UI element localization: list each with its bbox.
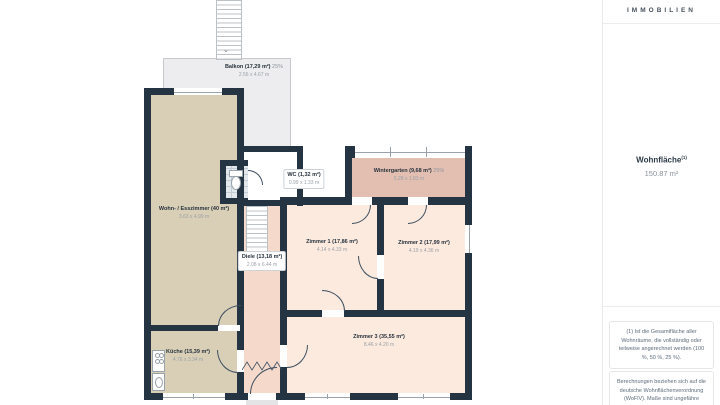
internal-staircase bbox=[246, 206, 268, 254]
wall bbox=[225, 393, 248, 400]
note-disclaimer-text: Berechnungen beziehen sich auf die deuts… bbox=[617, 379, 706, 405]
wall bbox=[372, 197, 408, 205]
toilet-icon bbox=[231, 176, 241, 190]
living-area-value: 150.87 m² bbox=[603, 169, 720, 178]
divider bbox=[603, 23, 720, 24]
door-opening bbox=[352, 197, 372, 205]
floor-plan-canvas: ⌄ bbox=[0, 0, 602, 405]
room-zimmer2 bbox=[384, 205, 465, 310]
wall bbox=[237, 372, 244, 393]
wall bbox=[276, 393, 305, 400]
window-mullion bbox=[423, 394, 424, 399]
room-label-wc: WC (1,32 m²) 0.99 x 1.33 m bbox=[283, 169, 324, 189]
door-opening bbox=[248, 393, 276, 400]
window bbox=[465, 225, 472, 253]
window-mullion bbox=[327, 394, 328, 399]
info-sidebar: IMMOBILIEN Wohnfläche(1) 150.87 m² (1) I… bbox=[602, 0, 720, 405]
room-name: Wohn- / Esszimmer (40 m²) bbox=[159, 206, 229, 213]
room-name: Zimmer 2 (17,99 m²) bbox=[398, 240, 450, 247]
wall bbox=[280, 197, 352, 205]
stair-break-line bbox=[242, 360, 282, 372]
wall bbox=[144, 88, 174, 95]
room-name: WC (1,32 m²) bbox=[287, 172, 320, 179]
wall bbox=[345, 146, 355, 158]
room-dims: 2.56 x 4.67 m bbox=[225, 72, 283, 78]
window-mullion bbox=[193, 394, 194, 399]
wall bbox=[465, 146, 472, 225]
window bbox=[174, 88, 222, 95]
room-label-diele: Diele (13,18 m²) 2.08 x 6.44 m bbox=[238, 251, 286, 271]
room-label-balkon: Balkon (17,29 m²) 25% 2.56 x 4.67 m bbox=[225, 64, 283, 78]
door-arc bbox=[248, 170, 263, 185]
room-dims: 4.19 x 4.36 m bbox=[398, 248, 450, 254]
room-name: Zimmer 1 (17,86 m²) bbox=[306, 239, 358, 246]
window bbox=[398, 393, 450, 400]
wall bbox=[144, 325, 218, 331]
room-percentage: 25% bbox=[272, 64, 283, 70]
note-disclaimer: Berechnungen beziehen sich auf die deuts… bbox=[609, 371, 714, 405]
wall bbox=[226, 160, 248, 166]
wall bbox=[226, 198, 248, 204]
room-percentage: 25% bbox=[433, 168, 444, 174]
door-opening bbox=[377, 255, 384, 279]
room-dims: 3.63 x 4.99 m bbox=[159, 214, 229, 220]
living-area-label: Wohnfläche(1) bbox=[603, 155, 720, 165]
brand-text: IMMOBILIEN bbox=[603, 7, 720, 14]
wall bbox=[465, 253, 472, 393]
room-label-wintergarten: Wintergarten (9,68 m²) 25% 5.28 x 1.83 m bbox=[374, 168, 445, 182]
room-label-kueche: Küche (15,39 m²) 4.76 x 3.34 m bbox=[166, 349, 210, 363]
room-dims: 4.76 x 3.34 m bbox=[166, 357, 210, 363]
note-calculation: (1) Ist die Gesamtfläche aller Wohnräume… bbox=[609, 321, 714, 369]
room-dims: 0.99 x 1.33 m bbox=[287, 180, 320, 186]
wall bbox=[280, 197, 287, 345]
living-area-label-text: Wohnfläche bbox=[636, 156, 681, 165]
stove-icon bbox=[152, 350, 165, 372]
living-area-block: Wohnfläche(1) 150.87 m² bbox=[603, 155, 720, 178]
wall bbox=[144, 393, 163, 400]
room-zimmer3 bbox=[287, 317, 465, 393]
entrance-step bbox=[246, 400, 278, 405]
wall bbox=[344, 310, 465, 317]
room-label-zimmer2: Zimmer 2 (17,99 m²) 4.19 x 4.36 m bbox=[398, 240, 450, 254]
room-dims: 8.46 x 4.20 m bbox=[353, 342, 405, 348]
window bbox=[163, 393, 225, 400]
wall bbox=[450, 393, 472, 400]
room-name: Küche (15,39 m²) bbox=[166, 349, 210, 356]
stairs-direction-arrow-icon: ⌄ bbox=[223, 47, 229, 54]
wall bbox=[377, 279, 384, 310]
room-label-zimmer1: Zimmer 1 (17,86 m²) 4.14 x 4.33 m bbox=[306, 239, 358, 253]
note-calculation-text: (1) Ist die Gesamtfläche aller Wohnräume… bbox=[619, 329, 704, 361]
window-mullion bbox=[390, 147, 391, 157]
wall bbox=[377, 205, 384, 255]
room-dims: 5.28 x 1.83 m bbox=[374, 176, 445, 182]
external-staircase bbox=[216, 0, 242, 60]
divider bbox=[603, 306, 720, 307]
sink-icon bbox=[152, 373, 165, 391]
window-mullion bbox=[426, 147, 427, 157]
room-name: Zimmer 3 (35,55 m²) bbox=[353, 334, 405, 341]
wall bbox=[350, 393, 398, 400]
wall bbox=[345, 158, 352, 197]
floorplan-page: ⌄ bbox=[0, 0, 720, 405]
room-dims: 2.08 x 6.44 m bbox=[242, 262, 282, 268]
room-label-zimmer3: Zimmer 3 (35,55 m²) 8.46 x 4.20 m bbox=[353, 334, 405, 348]
room-label-wohn-esszimmer: Wohn- / Esszimmer (40 m²) 3.63 x 4.99 m bbox=[159, 206, 229, 220]
window bbox=[355, 146, 465, 158]
door-opening bbox=[408, 197, 428, 205]
room-dims: 4.14 x 4.33 m bbox=[306, 247, 358, 253]
room-name: Balkon (17,29 m²) bbox=[225, 64, 271, 70]
wall bbox=[237, 146, 303, 152]
wall bbox=[144, 88, 151, 400]
door-opening bbox=[322, 310, 344, 317]
room-name: Wintergarten (9,68 m²) bbox=[374, 168, 432, 174]
living-area-footnote-marker: (1) bbox=[681, 155, 687, 160]
wall bbox=[287, 310, 322, 317]
room-name: Diele (13,18 m²) bbox=[242, 254, 282, 261]
